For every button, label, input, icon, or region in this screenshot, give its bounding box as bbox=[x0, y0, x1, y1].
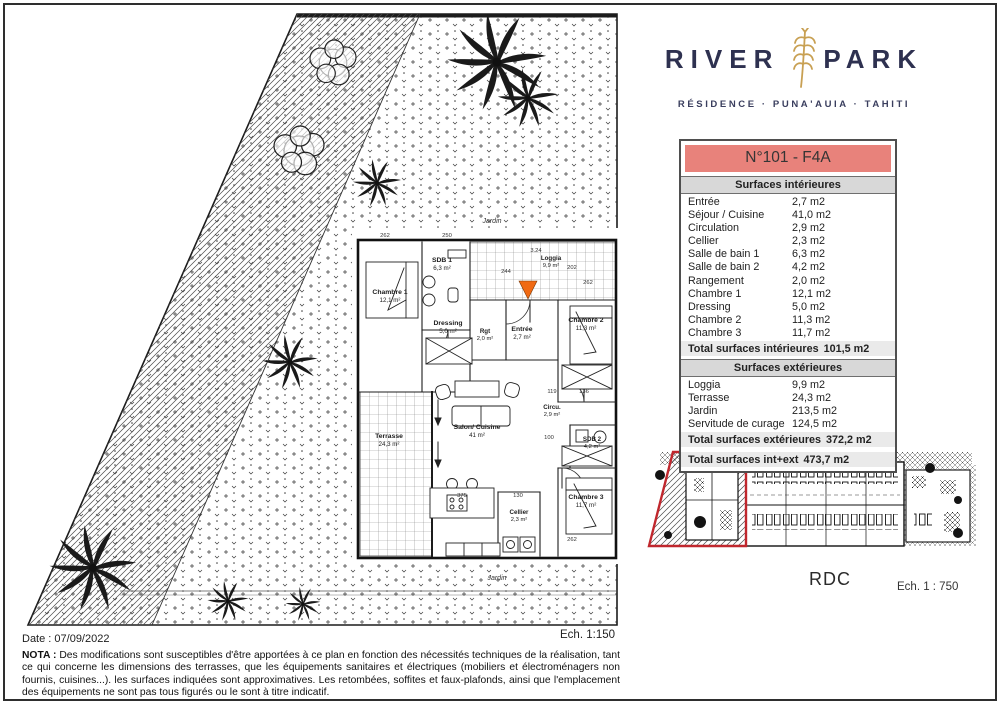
table-row: Jardin213,5 m2 bbox=[681, 405, 895, 418]
unit-title: N°101 - F4A bbox=[685, 145, 891, 172]
svg-text:24,3 m²: 24,3 m² bbox=[379, 441, 400, 448]
svg-text:Chambre 1: Chambre 1 bbox=[372, 289, 407, 296]
nota-text: Des modifications sont susceptibles d'êt… bbox=[22, 650, 620, 698]
svg-text:119: 119 bbox=[547, 389, 556, 395]
svg-text:Circu.: Circu. bbox=[543, 404, 561, 411]
table-row: Circulation2,9 m2 bbox=[681, 222, 895, 235]
svg-text:4,2 m²: 4,2 m² bbox=[584, 444, 600, 450]
svg-text:2,3 m²: 2,3 m² bbox=[511, 517, 527, 523]
svg-text:5,0 m²: 5,0 m² bbox=[439, 328, 457, 335]
table-row: Cellier2,3 m2 bbox=[681, 235, 895, 248]
unit-surface-table: N°101 - F4A Surfaces intérieures Entrée2… bbox=[679, 139, 897, 473]
room-label-terrasse: Terrasse24,3 m² bbox=[375, 433, 403, 448]
room-label-sdb-1: SDB 16,3 m² bbox=[432, 257, 452, 272]
room-label-entree: Entrée2,7 m² bbox=[511, 326, 532, 341]
table-row: Servitude de curage124,5 m2 bbox=[681, 418, 895, 431]
loggia-tiles bbox=[470, 242, 616, 300]
garden-label-bottom: Jardin bbox=[486, 575, 506, 582]
interior-section-header: Surfaces intérieures bbox=[681, 176, 895, 194]
grand-total-row: Total surfaces int+ext473,7 m2 bbox=[681, 452, 895, 467]
apartment-plan bbox=[352, 228, 620, 564]
svg-text:SDB 2: SDB 2 bbox=[583, 436, 602, 443]
table-row: Loggia9,9 m2 bbox=[681, 379, 895, 392]
table-row: Salle de bain 24,2 m2 bbox=[681, 261, 895, 274]
svg-text:130: 130 bbox=[513, 493, 523, 499]
svg-text:2,0 m²: 2,0 m² bbox=[477, 336, 493, 342]
svg-text:Cellier: Cellier bbox=[510, 509, 530, 516]
svg-text:11,3 m²: 11,3 m² bbox=[576, 325, 597, 332]
svg-text:11,7 m²: 11,7 m² bbox=[576, 502, 597, 509]
svg-text:262: 262 bbox=[583, 280, 593, 286]
svg-text:41 m²: 41 m² bbox=[469, 432, 485, 439]
svg-text:Dressing: Dressing bbox=[433, 320, 462, 327]
logo: RIVER PARK RÉSIDENCE · PUNA'AUIA · TAHIT… bbox=[648, 28, 940, 110]
svg-text:Loggia: Loggia bbox=[541, 255, 562, 262]
table-row: Séjour / Cuisine41,0 m2 bbox=[681, 209, 895, 222]
svg-text:Chambre 3: Chambre 3 bbox=[568, 494, 603, 501]
svg-text:2,7 m²: 2,7 m² bbox=[513, 334, 531, 341]
logo-word-river: RIVER bbox=[665, 44, 779, 75]
svg-text:9,9 m²: 9,9 m² bbox=[543, 263, 559, 269]
svg-text:262: 262 bbox=[380, 233, 390, 239]
logo-subtitle: RÉSIDENCE · PUNA'AUIA · TAHITI bbox=[648, 99, 940, 110]
nota-prefix: NOTA : bbox=[22, 650, 56, 661]
wheat-icon bbox=[789, 28, 819, 90]
svg-text:Rgt: Rgt bbox=[480, 328, 490, 335]
date-label: Date : 07/09/2022 bbox=[22, 633, 109, 645]
svg-text:100: 100 bbox=[544, 435, 554, 441]
svg-text:12,1 m²: 12,1 m² bbox=[380, 297, 401, 304]
svg-text:3.24: 3.24 bbox=[530, 248, 542, 254]
svg-text:136: 136 bbox=[579, 389, 589, 395]
svg-text:Entrée: Entrée bbox=[511, 326, 532, 333]
svg-text:244: 244 bbox=[501, 269, 511, 275]
svg-text:SDB 1: SDB 1 bbox=[432, 257, 452, 264]
table-row: Chambre 311,7 m2 bbox=[681, 327, 895, 340]
svg-text:Chambre 2: Chambre 2 bbox=[568, 317, 603, 324]
main-plan-scale: Ech. 1:150 bbox=[540, 629, 615, 641]
exterior-total-row: Total surfaces extérieures372,2 m2 bbox=[681, 432, 895, 447]
table-row: Rangement2,0 m2 bbox=[681, 275, 895, 288]
svg-text:2,9 m²: 2,9 m² bbox=[544, 412, 560, 418]
table-row: Chambre 112,1 m2 bbox=[681, 288, 895, 301]
svg-text:Terrasse: Terrasse bbox=[375, 433, 403, 440]
svg-text:Salon/ Cuisine: Salon/ Cuisine bbox=[454, 424, 501, 431]
table-row: Entrée2,7 m2 bbox=[681, 196, 895, 209]
logo-word-park: PARK bbox=[823, 44, 923, 75]
table-row: Salle de bain 16,3 m2 bbox=[681, 248, 895, 261]
svg-text:202: 202 bbox=[567, 265, 577, 271]
nota-disclaimer: NOTA : Des modifications sont susceptibl… bbox=[22, 650, 620, 700]
table-row: Terrasse24,3 m2 bbox=[681, 392, 895, 405]
exterior-section-header: Surfaces extérieures bbox=[681, 359, 895, 377]
svg-text:6,3 m²: 6,3 m² bbox=[433, 265, 451, 272]
site-plan-floor-label: RDC bbox=[798, 569, 862, 590]
svg-text:250: 250 bbox=[442, 233, 452, 239]
garden-label-top: Jardin bbox=[481, 218, 501, 225]
table-row: Dressing5,0 m2 bbox=[681, 301, 895, 314]
svg-text:375: 375 bbox=[457, 493, 467, 499]
site-plan-scale: Ech. 1 : 750 bbox=[897, 581, 958, 593]
table-row: Chambre 211,3 m2 bbox=[681, 314, 895, 327]
svg-text:262: 262 bbox=[567, 537, 577, 543]
interior-total-row: Total surfaces intérieures101,5 m2 bbox=[681, 341, 895, 356]
terrasse-tiles bbox=[360, 392, 432, 556]
